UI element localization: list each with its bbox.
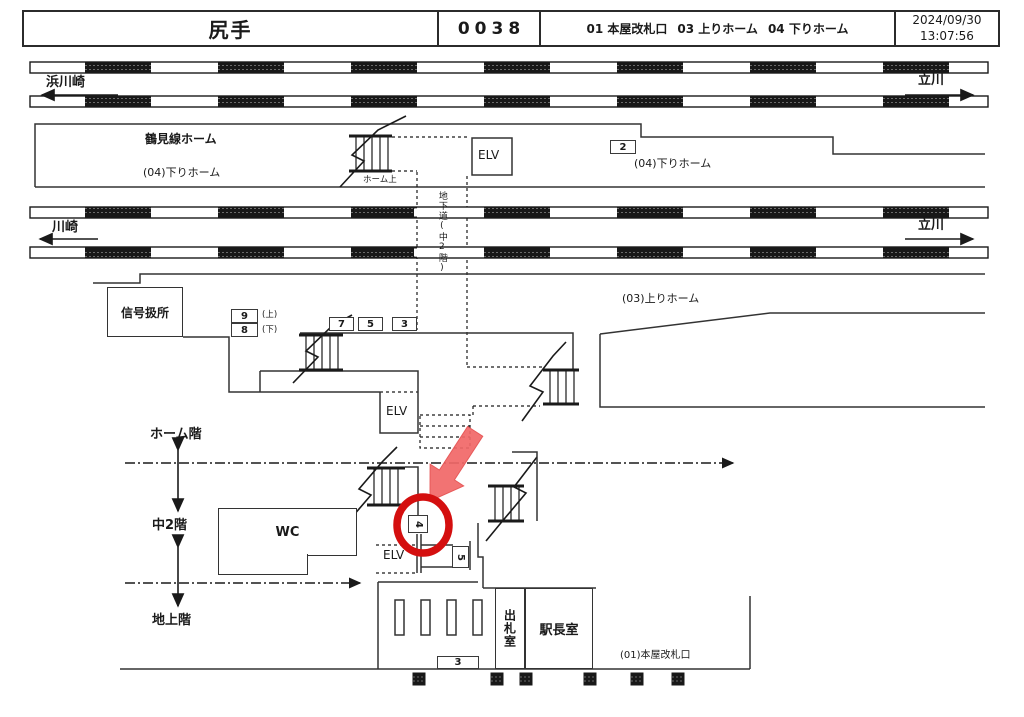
gate-number-box-3: 3 [437, 656, 479, 669]
signal-box: 信号扱所 [107, 287, 183, 337]
track-number-box-2: 2 [610, 140, 636, 154]
direction-hamakawasaki: 浜川崎 [46, 76, 85, 90]
station-name: 尻手 [24, 12, 437, 45]
track-number-box-7: 7 [329, 317, 354, 331]
track-number-box-5: 5 [358, 317, 383, 331]
elevator-label-ground: ELV [383, 549, 404, 562]
stairs-icon-mezzanine-right [522, 342, 579, 421]
level-label-mezzanine: 中2階 [152, 519, 187, 533]
box9-note: (上) [262, 311, 277, 320]
ticket-gate-4 [473, 600, 482, 635]
wc-room: WC [218, 508, 357, 556]
underpass-dashed-corridor [380, 137, 543, 448]
exit-list: 01 本屋改札口 03 上りホーム 04 下りホーム [539, 12, 894, 45]
box8-note: (下) [262, 326, 277, 335]
mezzanine-outline [93, 274, 985, 433]
station-master-room: 駅長室 [525, 588, 593, 669]
date-text: 2024/09/30 [912, 13, 981, 29]
time-text: 13:07:56 [920, 29, 974, 45]
underpass-label: 地下道(中2階) [436, 191, 446, 271]
wc-annex [218, 554, 308, 575]
ticket-office-room: 出札室 [495, 588, 525, 669]
tsurumi-line-platform-label: 鶴見線ホーム [145, 133, 217, 146]
header-bar: 尻手 0038 01 本屋改札口 03 上りホーム 04 下りホーム 2024/… [22, 10, 1000, 47]
ticket-gate-2 [421, 600, 430, 635]
exit-item: 01 本屋改札口 [587, 20, 668, 37]
track-number-box-9: 9 [231, 309, 258, 323]
track-band-middle [30, 207, 988, 258]
station-code: 0038 [437, 12, 539, 45]
exit-item: 04 下りホーム [768, 20, 849, 37]
direction-tachikawa-top: 立川 [918, 74, 944, 88]
level-label-platform: ホーム階 [150, 428, 202, 442]
platform04-label-right: (04)下りホーム [634, 158, 711, 170]
platform-number-box-5-ground: 5 [452, 546, 469, 568]
track-band-top [30, 62, 988, 107]
elevator-label-platform04: ELV [478, 149, 499, 162]
platform04-label-left: (04)下りホーム [143, 167, 220, 179]
box4-text: 4 [413, 521, 424, 528]
bottom-hatch-markers [413, 673, 684, 685]
box5-text: 5 [455, 554, 466, 561]
main-gate-label: (01)本屋改札口 [620, 650, 691, 661]
direction-tachikawa-mid: 立川 [918, 219, 944, 233]
station-diagram: 尻手 0038 01 本屋改札口 03 上りホーム 04 下りホーム 2024/… [0, 0, 1024, 717]
platform-number-box-4: 4 [408, 515, 428, 533]
stair-top-label: ホーム上 [363, 176, 397, 185]
track-number-box-3: 3 [392, 317, 417, 331]
exit-item: 03 上りホーム [677, 20, 758, 37]
direction-kawasaki: 川崎 [52, 221, 78, 235]
platform03-label: (03)上りホーム [622, 293, 699, 305]
datetime: 2024/09/30 13:07:56 [894, 12, 998, 45]
track-number-box-8: 8 [231, 323, 258, 337]
level-label-ground: 地上階 [152, 614, 191, 628]
ticket-gate-3 [447, 600, 456, 635]
ticket-gate-1 [395, 600, 404, 635]
elevator-label-mezzanine: ELV [386, 405, 407, 418]
stairs-icon-ground-right [486, 457, 537, 541]
